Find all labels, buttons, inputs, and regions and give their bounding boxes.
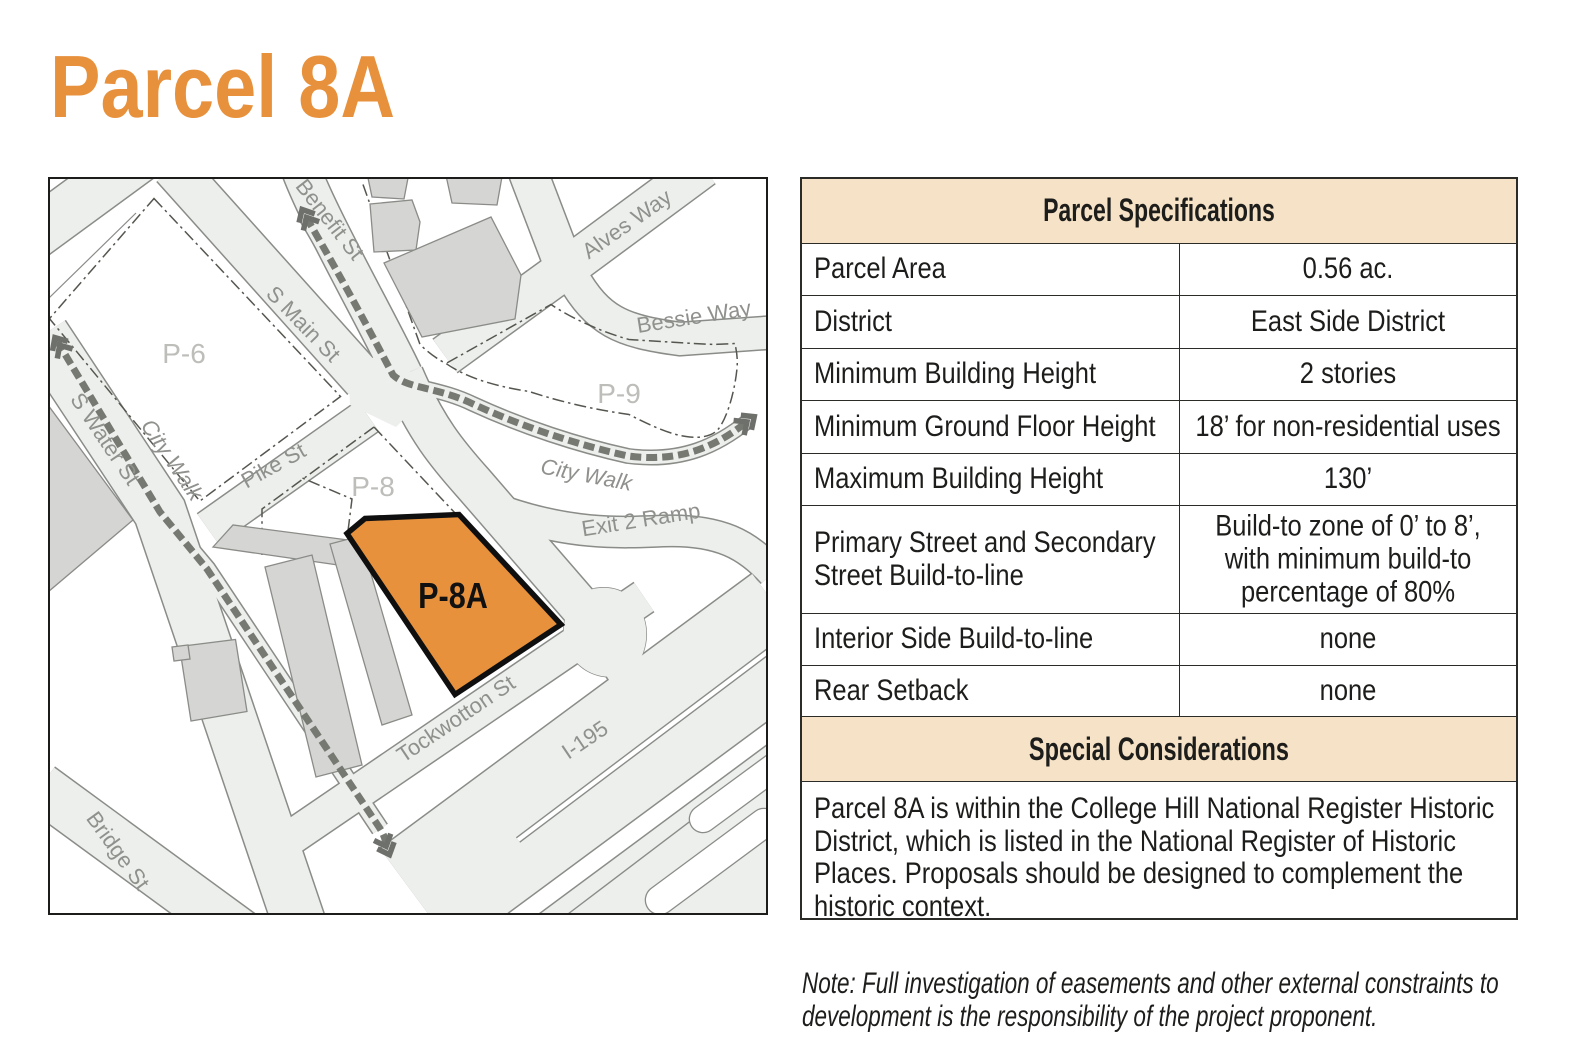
svg-text:P-6: P-6 xyxy=(162,338,206,369)
svg-text:P-8A: P-8A xyxy=(418,577,488,617)
svg-text:P-9: P-9 xyxy=(597,378,641,409)
svg-text:P-8: P-8 xyxy=(351,471,395,502)
